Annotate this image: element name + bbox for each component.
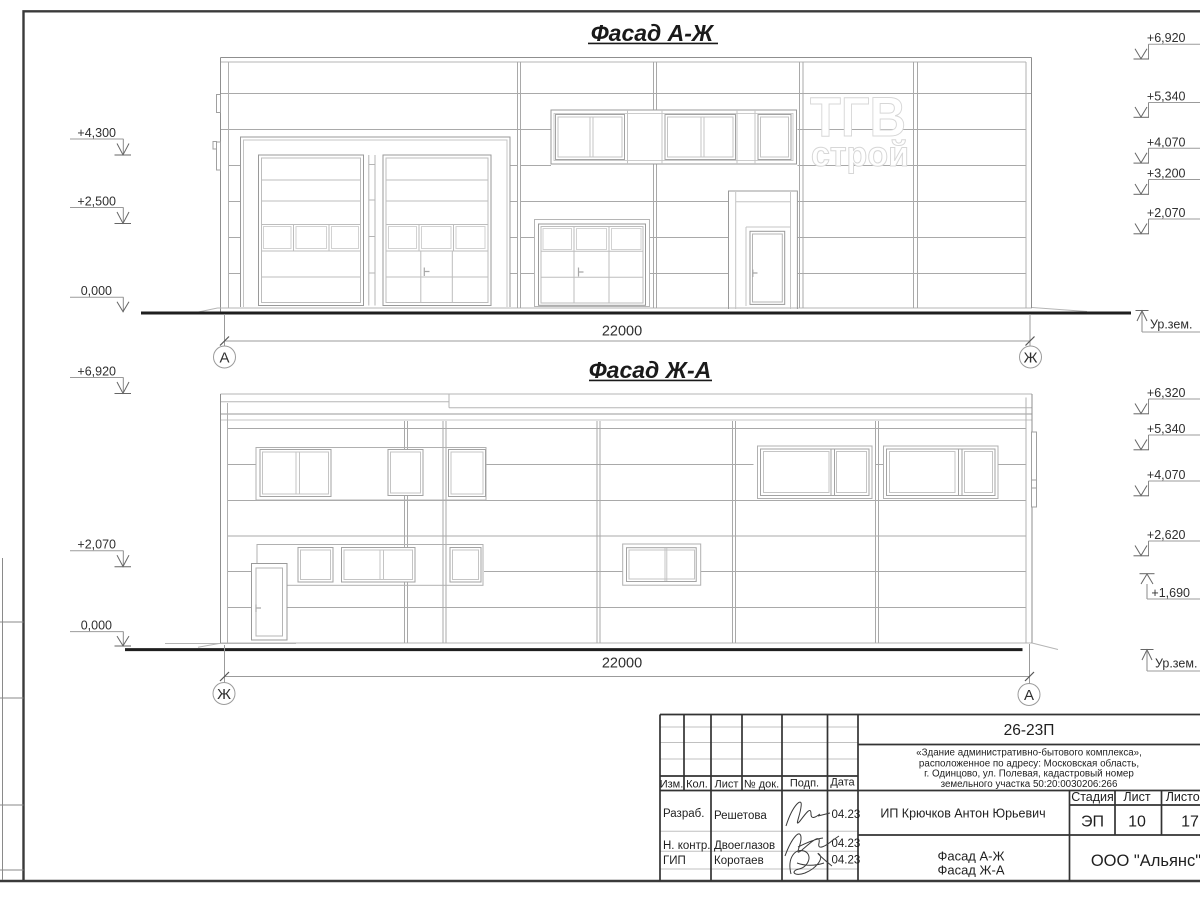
- svg-text:строй: строй: [811, 135, 909, 174]
- svg-text:Фасад Ж-А: Фасад Ж-А: [937, 863, 1004, 878]
- svg-text:+2,500: +2,500: [77, 195, 116, 209]
- svg-text:+2,070: +2,070: [77, 538, 116, 552]
- svg-text:+1,690: +1,690: [1151, 586, 1190, 600]
- svg-text:+5,340: +5,340: [1147, 90, 1186, 104]
- svg-text:+5,340: +5,340: [1147, 422, 1186, 436]
- svg-text:+2,620: +2,620: [1147, 528, 1186, 542]
- svg-text:Разраб.: Разраб.: [663, 808, 704, 820]
- svg-text:земельного участка 50:20:00302: земельного участка 50:20:0030206:266: [941, 779, 1118, 790]
- svg-text:04.23: 04.23: [832, 809, 861, 821]
- svg-text:Подп.: Подп.: [790, 778, 819, 790]
- svg-text:Ур.зем.: Ур.зем.: [1150, 318, 1192, 332]
- svg-text:Н. контр.: Н. контр.: [663, 840, 710, 852]
- svg-text:ИП Крючков Антон Юрьевич: ИП Крючков Антон Юрьевич: [880, 807, 1045, 821]
- svg-text:№ док.: № док.: [744, 779, 779, 791]
- svg-text:17: 17: [1181, 814, 1199, 831]
- svg-text:ООО "Альянс": ООО "Альянс": [1091, 852, 1200, 870]
- svg-text:+6,920: +6,920: [1147, 31, 1186, 45]
- svg-text:Фасад А-Ж: Фасад А-Ж: [591, 20, 715, 46]
- svg-text:26-23П: 26-23П: [1004, 722, 1055, 739]
- svg-text:0,000: 0,000: [81, 284, 112, 298]
- svg-text:Лист: Лист: [715, 779, 739, 791]
- svg-text:Изм.: Изм.: [660, 779, 684, 791]
- svg-text:ЭП: ЭП: [1081, 814, 1104, 831]
- svg-text:+4,070: +4,070: [1147, 468, 1186, 482]
- svg-text:Ур.зем.: Ур.зем.: [1155, 657, 1197, 671]
- svg-text:Решетова: Решетова: [714, 810, 767, 822]
- svg-text:Ж: Ж: [1024, 350, 1038, 367]
- svg-text:А: А: [219, 350, 229, 367]
- svg-text:22000: 22000: [602, 324, 642, 340]
- svg-text:Дата: Дата: [830, 777, 855, 789]
- svg-text:Листов: Листов: [1166, 790, 1200, 804]
- svg-text:А: А: [1024, 687, 1034, 704]
- svg-text:10: 10: [1128, 814, 1146, 831]
- svg-text:+3,200: +3,200: [1147, 167, 1186, 181]
- svg-text:Коротаев: Коротаев: [714, 855, 764, 867]
- svg-text:0,000: 0,000: [81, 619, 112, 633]
- svg-text:г. Одинцово, ул. Полевая, када: г. Одинцово, ул. Полевая, кадастровый но…: [924, 769, 1134, 780]
- svg-text:+4,300: +4,300: [77, 126, 116, 140]
- svg-text:+4,070: +4,070: [1147, 135, 1186, 149]
- svg-text:Ж: Ж: [217, 686, 231, 703]
- svg-text:22000: 22000: [602, 656, 642, 672]
- svg-text:Двоеглазов: Двоеглазов: [714, 840, 775, 852]
- svg-text:04.23: 04.23: [832, 855, 861, 867]
- svg-text:Фасад Ж-А: Фасад Ж-А: [589, 357, 712, 383]
- svg-text:Фасад А-Ж: Фасад А-Ж: [937, 849, 1004, 864]
- svg-text:ГИП: ГИП: [663, 855, 686, 867]
- svg-text:Лист: Лист: [1123, 790, 1150, 804]
- svg-text:Стадия: Стадия: [1071, 790, 1114, 804]
- svg-text:+6,920: +6,920: [77, 365, 116, 379]
- svg-text:+6,320: +6,320: [1147, 386, 1186, 400]
- svg-text:Кол.: Кол.: [686, 779, 708, 791]
- svg-text:04.23: 04.23: [832, 838, 861, 850]
- svg-text:«Здание административно-бытово: «Здание административно-бытового комплек…: [916, 748, 1142, 759]
- svg-text:+2,070: +2,070: [1147, 206, 1186, 220]
